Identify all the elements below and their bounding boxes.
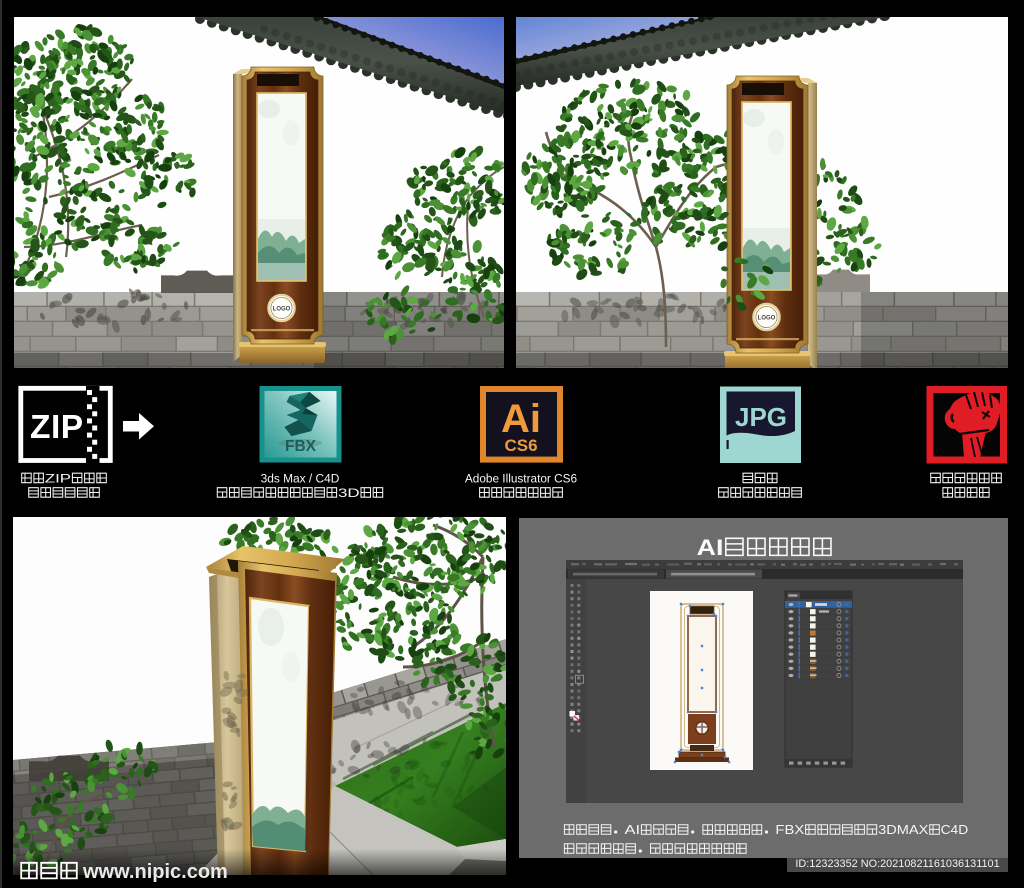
svg-text:LOGO: LOGO <box>273 307 291 313</box>
svg-text:Ai: Ai <box>501 397 541 441</box>
svg-text:AI: AI <box>697 535 724 560</box>
svg-text:LOGO: LOGO <box>758 316 776 322</box>
svg-text:FBX: FBX <box>775 822 804 837</box>
svg-text:FBX: FBX <box>285 438 317 455</box>
svg-text:AI: AI <box>625 822 641 837</box>
svg-text:www.nipic.com: www.nipic.com <box>82 861 228 883</box>
svg-text:Adobe Illustrator CS6: Adobe Illustrator CS6 <box>465 472 577 486</box>
svg-text:3D: 3D <box>338 486 360 500</box>
svg-text:3DMAX: 3DMAX <box>878 822 929 837</box>
svg-text:ZIP: ZIP <box>45 472 71 486</box>
svg-text:CS6: CS6 <box>504 436 537 455</box>
svg-text:JPG: JPG <box>735 402 787 432</box>
svg-text:ZIP: ZIP <box>30 409 84 446</box>
svg-text:C4D: C4D <box>941 822 969 837</box>
svg-text:3ds Max / C4D: 3ds Max / C4D <box>261 472 340 486</box>
